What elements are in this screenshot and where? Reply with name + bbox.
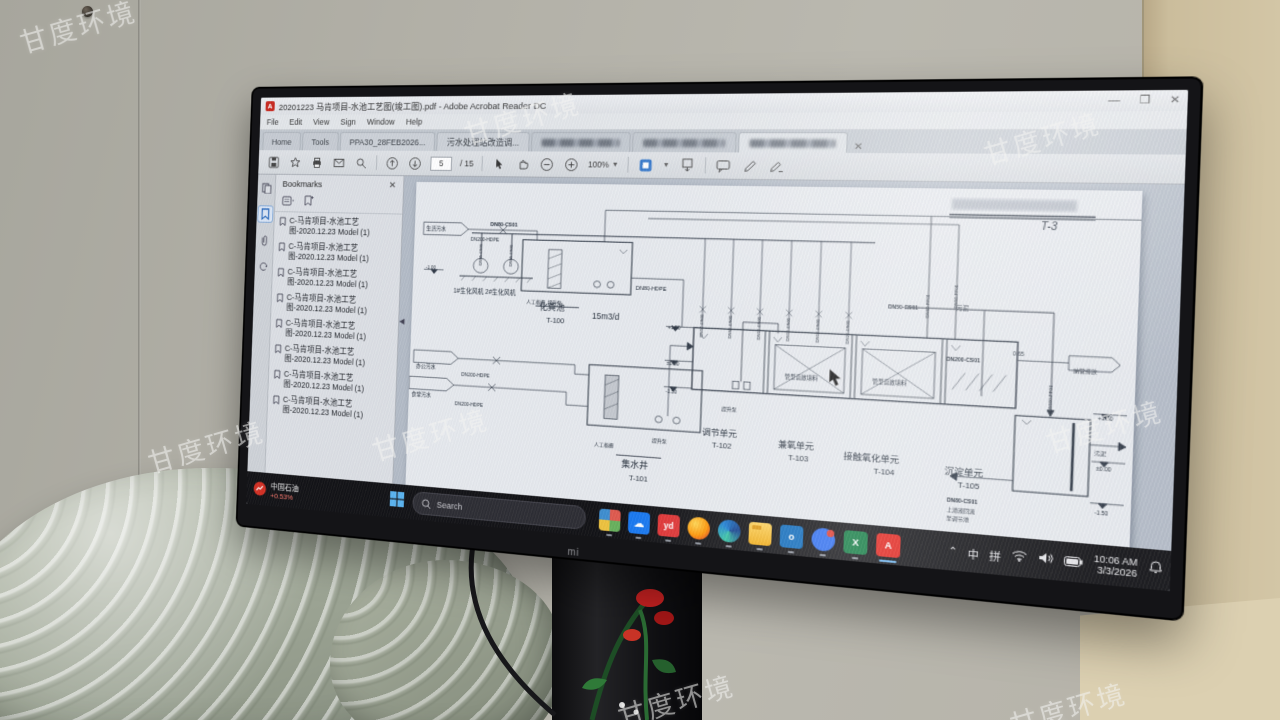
- bookmark-icon: [278, 242, 285, 251]
- diagram-label: T-105: [957, 481, 979, 491]
- diagram-label: T-103: [788, 454, 809, 464]
- diagram-label: +1.50: [1098, 417, 1113, 424]
- bookmark-icon: [276, 319, 283, 328]
- diagram-label: DN80-HDPE: [636, 287, 667, 294]
- search-icon[interactable]: [354, 155, 369, 171]
- acrobat-app-icon: A: [265, 101, 274, 111]
- restore-icon[interactable]: ❐: [1139, 95, 1150, 107]
- menu-item[interactable]: File: [267, 117, 279, 126]
- monitor: A 20201223 马肯项目-水池工艺图(竣工图).pdf - Adobe A…: [236, 76, 1204, 621]
- bookmarks-list: C-马肯项目-水池工艺图-2020.12.23 Model (1) C-马肯项目…: [267, 212, 402, 428]
- search-icon: [421, 498, 431, 509]
- scroll-mode-icon[interactable]: [678, 157, 696, 174]
- star-icon[interactable]: [288, 154, 303, 170]
- close-panel-icon[interactable]: ✕: [389, 180, 397, 190]
- menu-item[interactable]: Help: [406, 117, 423, 126]
- diagram-label: -1.50: [1094, 511, 1108, 518]
- close-icon[interactable]: ✕: [1170, 94, 1181, 106]
- rotate-pages-icon[interactable]: [256, 259, 270, 275]
- window-title: 20201223 马肯项目-水池工艺图(竣工图).pdf - Adobe Acr…: [279, 98, 547, 113]
- document-tab[interactable]: Home: [262, 132, 301, 150]
- taskbar-clock[interactable]: 10:06 AM 3/3/2026: [1093, 553, 1137, 579]
- diagram-label: 办公污水: [416, 365, 436, 372]
- diagram-label: 食堂污水: [411, 393, 431, 400]
- attachments-icon[interactable]: [257, 232, 271, 248]
- screen: A 20201223 马肯项目-水池工艺图(竣工图).pdf - Adobe A…: [246, 90, 1188, 591]
- bookmark-icon: [277, 293, 284, 302]
- taskbar-stock-widget[interactable]: 中国石油 +0.53%: [253, 479, 380, 510]
- bookmark-item[interactable]: C-马肯项目-水池工艺图-2020.12.23 Model (1): [276, 292, 397, 317]
- diagram-label: 提升泵: [721, 408, 737, 414]
- document-tab[interactable]: [531, 132, 631, 152]
- diagram-label: DN80-PP01: [925, 294, 931, 318]
- bookmark-item[interactable]: C-马肯项目-水池工艺图-2020.12.23 Model (1): [274, 343, 395, 369]
- bookmark-item[interactable]: C-马肯项目-水池工艺图-2020.12.23 Model (1): [272, 394, 393, 422]
- ime-language-indicator[interactable]: 中: [967, 545, 979, 562]
- diagram-label: 提升泵: [652, 439, 667, 445]
- page-total-label: / 15: [460, 159, 474, 169]
- tray-overflow-icon[interactable]: ⌃: [948, 545, 958, 558]
- wifi-icon[interactable]: [1011, 547, 1028, 568]
- document-tab[interactable]: [738, 132, 848, 153]
- document-tab[interactable]: 污水处理站改造调...: [437, 132, 530, 151]
- select-tool-icon[interactable]: [491, 156, 507, 172]
- windows-logo-icon: [390, 491, 405, 507]
- hand-tool-icon[interactable]: [514, 156, 530, 173]
- bookmark-item[interactable]: C-马肯项目-水池工艺图-2020.12.23 Model (1): [278, 241, 399, 264]
- diagram-label: DN15-CS01: [786, 318, 791, 341]
- taskbar-app-icon-file-explorer[interactable]: [748, 522, 772, 547]
- diagram-label: -1.00: [426, 266, 436, 271]
- fill-sign-icon[interactable]: [768, 157, 786, 175]
- zoom-in-icon[interactable]: [563, 156, 580, 173]
- bookmark-item[interactable]: C-马肯项目-水池工艺图-2020.12.23 Model (1): [277, 267, 398, 291]
- notification-bell-icon[interactable]: [1148, 559, 1164, 580]
- monitor-brand-logo: mi: [567, 547, 579, 559]
- document-tab[interactable]: [632, 132, 737, 152]
- taskbar-app-icon-wecom[interactable]: [811, 527, 835, 552]
- diagram-label: 生活污水: [426, 227, 446, 233]
- photo-scene: A 20201223 马肯项目-水池工艺图(竣工图).pdf - Adobe A…: [0, 0, 1280, 720]
- diagram-label: DN65-CS01: [728, 315, 733, 338]
- diagram-label: T-102: [712, 441, 732, 450]
- menu-item[interactable]: Sign: [340, 117, 356, 126]
- diagram-label: 15m3/d: [592, 312, 620, 322]
- diagram-label: ±0.00: [1096, 467, 1111, 474]
- zoom-out-icon[interactable]: [539, 156, 556, 173]
- collapse-panel-icon[interactable]: ◀: [399, 317, 405, 326]
- zoom-level-select[interactable]: 100%▼: [588, 160, 619, 170]
- next-page-icon[interactable]: [407, 155, 423, 171]
- ime-mode-indicator[interactable]: 拼: [989, 547, 1001, 564]
- fit-page-icon[interactable]: [637, 156, 654, 173]
- taskbar-app-icon-excel[interactable]: X: [843, 530, 868, 555]
- diagram-label: DN50-CS01: [888, 305, 918, 312]
- previous-page-icon[interactable]: [385, 155, 400, 171]
- diagram-label: 化粪池: [539, 303, 565, 313]
- document-tab[interactable]: PPA30_28FEB2026...: [340, 132, 436, 151]
- diagram-label: DN80-CS01: [490, 223, 517, 229]
- diagram-label: DN65-CS01: [509, 245, 514, 267]
- diagram-label: T-100: [546, 317, 564, 325]
- pen-icon[interactable]: [741, 157, 759, 174]
- mouse-cursor: [829, 369, 841, 386]
- taskbar-app-icon-acrobat[interactable]: A: [876, 533, 901, 558]
- menu-item[interactable]: View: [313, 117, 330, 126]
- document-tab[interactable]: Tools: [302, 132, 339, 150]
- bookmark-item[interactable]: C-马肯项目-水池工艺图-2020.12.23 Model (1): [275, 318, 396, 343]
- page-number-input[interactable]: 5: [430, 156, 452, 170]
- diagram-label: DN50-CS01: [699, 314, 704, 337]
- menu-item[interactable]: Edit: [289, 117, 302, 126]
- taskbar-app-icon-youdao[interactable]: yd: [657, 514, 680, 538]
- diagram-label: DN15-CS01: [815, 319, 821, 343]
- bookmark-icon: [274, 369, 281, 379]
- bookmarks-panel-title: Bookmarks: [282, 179, 322, 190]
- diagram-label: 污泥: [956, 307, 969, 314]
- comment-icon[interactable]: [714, 157, 732, 174]
- volume-icon[interactable]: [1038, 549, 1054, 570]
- battery-icon[interactable]: [1064, 552, 1084, 573]
- diagram-label: T-101: [629, 474, 648, 483]
- bookmark-item[interactable]: C-马肯项目-水池工艺图-2020.12.23 Model (1): [273, 369, 394, 396]
- diagram-label: T-104: [873, 467, 894, 477]
- minimize-icon[interactable]: —: [1108, 95, 1120, 107]
- chevron-down-icon[interactable]: ▼: [663, 162, 670, 169]
- diagram-label: DN200-HDPE: [471, 238, 500, 244]
- diagram-label: DN65-CS01: [479, 244, 484, 266]
- email-icon[interactable]: [331, 155, 346, 171]
- diagram-label: 集水井: [621, 460, 648, 471]
- taskbar-app-icon-edge[interactable]: [718, 519, 741, 543]
- close-active-tab-icon[interactable]: ✕: [854, 142, 863, 153]
- chevron-down-icon: ▼: [612, 161, 619, 168]
- bookmark-icon: [275, 344, 282, 353]
- diagram-label: 污泥: [1094, 452, 1106, 459]
- taskbar-app-icon-cloud-drive[interactable]: ☁: [628, 511, 650, 535]
- start-button[interactable]: [390, 491, 405, 512]
- bookmark-icon: [277, 268, 284, 277]
- bookmark-icon: [273, 395, 280, 405]
- bookmark-options-icon[interactable]: [282, 194, 296, 211]
- new-bookmark-icon[interactable]: [303, 194, 314, 211]
- page-thumbnails-icon[interactable]: [259, 180, 273, 196]
- diagram-label: -1.50: [665, 390, 677, 396]
- diagram-label: 纳管排放: [1073, 369, 1097, 376]
- taskbar-app-icon-outlook[interactable]: o: [780, 524, 804, 549]
- bookmark-icon: [279, 217, 286, 226]
- bookmarks-panel: Bookmarks ✕ C-马肯项目-水池工艺图-2020.12.23 Mod: [265, 175, 405, 501]
- bookmark-item[interactable]: C-马肯项目-水池工艺图-2020.12.23 Model (1): [279, 216, 400, 238]
- diagram-label: DN25-CS01: [845, 320, 851, 344]
- save-icon[interactable]: [267, 154, 282, 170]
- taskbar-app-icon-firefox[interactable]: [687, 516, 710, 540]
- diagram-label: 0.65: [1013, 352, 1025, 358]
- diagram-label: T-3: [1041, 222, 1058, 234]
- diagram-label: ±0.00: [666, 362, 679, 368]
- stock-widget-icon: [253, 481, 267, 497]
- diagram-label: DN100-PP01: [1048, 385, 1054, 412]
- taskbar-app-icon-widgets[interactable]: [599, 508, 621, 532]
- menu-bar: FileEditViewSignWindowHelp: [260, 111, 1187, 130]
- diagram-label: DN15-CS01: [756, 317, 761, 340]
- menu-item[interactable]: Window: [367, 117, 395, 126]
- diagram-label: +1.50: [668, 326, 681, 332]
- print-icon[interactable]: [310, 154, 325, 170]
- bookmarks-panel-icon[interactable]: [258, 206, 272, 222]
